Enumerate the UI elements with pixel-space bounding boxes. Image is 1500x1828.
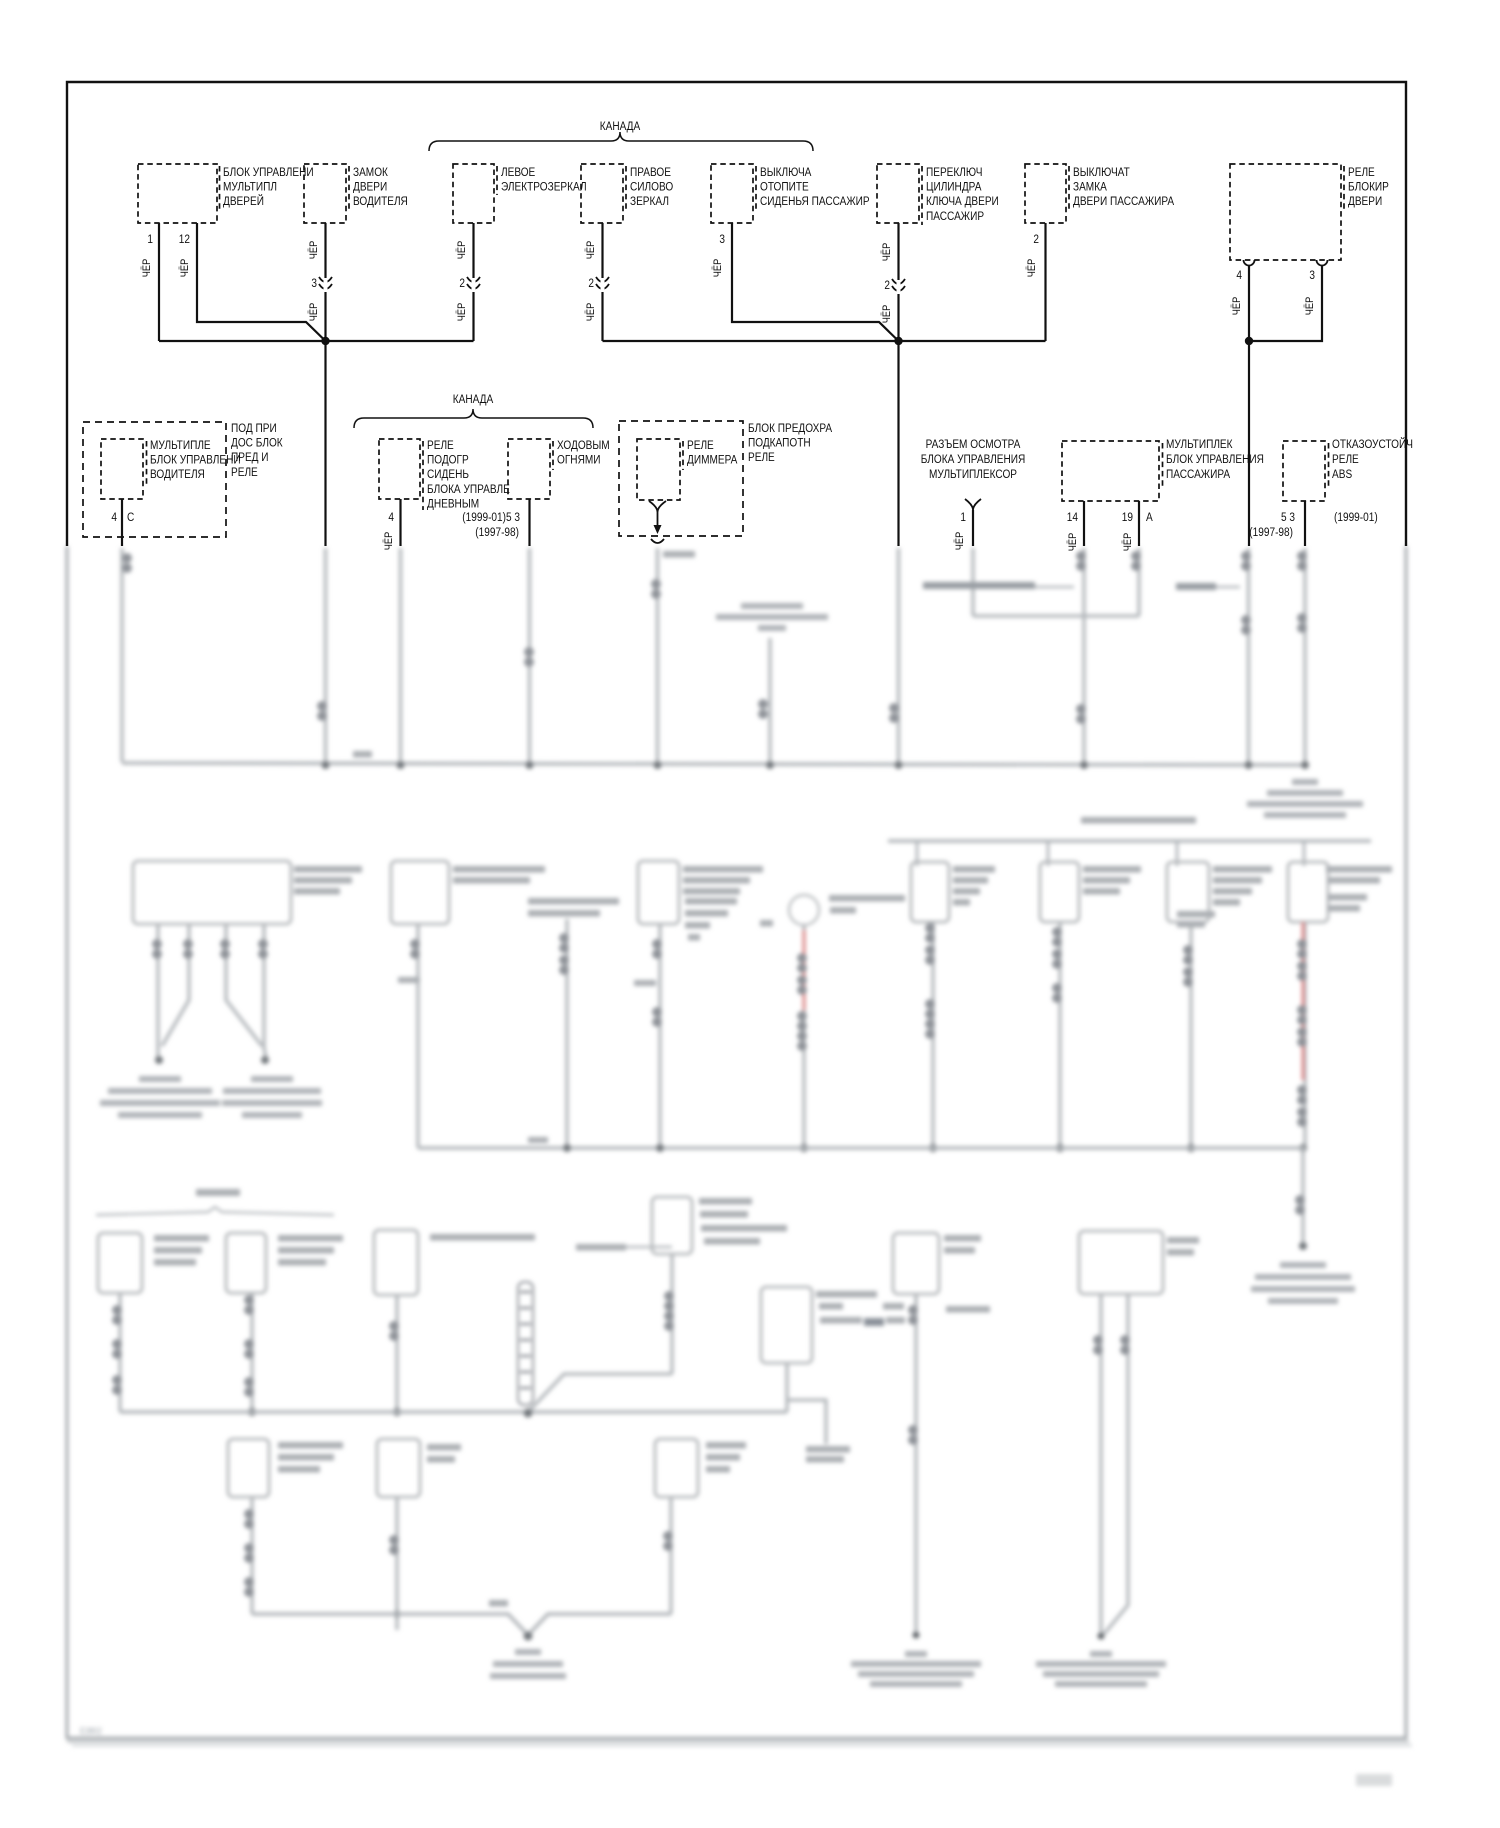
svg-text:A: A [1146,511,1153,524]
svg-text:ЧЁР: ЧЁР [307,303,320,322]
svg-text:ВЫКЛЮЧА: ВЫКЛЮЧА [760,166,812,179]
svg-text:СИДЕНЬ: СИДЕНЬ [427,468,469,481]
svg-text:1: 1 [960,511,966,524]
svg-text:РЕЛЕ: РЕЛЕ [1332,453,1359,466]
svg-text:4: 4 [388,511,394,524]
svg-text:БЛОК ПРЕДОХРА: БЛОК ПРЕДОХРА [748,422,833,435]
svg-text:ЧЁР: ЧЁР [953,532,966,551]
svg-text:2: 2 [884,279,890,292]
svg-text:РЕЛЕ: РЕЛЕ [748,451,775,464]
svg-text:РАЗЪЕМ ОСМОТРА: РАЗЪЕМ ОСМОТРА [926,438,1021,451]
svg-text:ПОДКАПОТН: ПОДКАПОТН [748,437,811,450]
svg-text:ЧЁР: ЧЁР [880,305,893,324]
svg-text:РЕЛЕ: РЕЛЕ [427,439,454,452]
svg-text:ЗАМОК: ЗАМОК [353,166,388,179]
svg-text:C: C [127,511,134,524]
svg-text:2: 2 [459,277,465,290]
svg-text:ДВЕРИ: ДВЕРИ [1348,195,1382,208]
svg-text:5 3: 5 3 [1281,511,1295,524]
svg-text:БЛОК УПРАВЛЕНИ: БЛОК УПРАВЛЕНИ [223,166,314,179]
svg-text:БЛОКА УПРАВЛЕ: БЛОКА УПРАВЛЕ [427,483,510,496]
svg-text:РЕЛЕ: РЕЛЕ [231,466,258,479]
svg-text:3: 3 [1309,269,1315,282]
svg-text:БЛОКА УПРАВЛЕНИЯ: БЛОКА УПРАВЛЕНИЯ [921,453,1026,466]
svg-text:ЧЁР: ЧЁР [1121,533,1134,552]
svg-text:2: 2 [1033,233,1039,246]
svg-text:ОГНЯМИ: ОГНЯМИ [557,454,601,467]
svg-text:ВОДИТЕЛЯ: ВОДИТЕЛЯ [353,195,408,208]
svg-text:ЧЁР: ЧЁР [382,532,395,551]
svg-text:СИДЕНЬЯ ПАССАЖИР: СИДЕНЬЯ ПАССАЖИР [760,195,870,208]
svg-text:ОТКАЗОУСТОЙЧ: ОТКАЗОУСТОЙЧ [1332,437,1413,451]
svg-text:ЧЁР: ЧЁР [140,259,153,278]
svg-text:КАНАДА: КАНАДА [453,393,494,406]
svg-text:РЕЛЕ: РЕЛЕ [1348,166,1375,179]
svg-text:ДВЕРЕЙ: ДВЕРЕЙ [223,194,264,208]
svg-text:РЕЛЕ: РЕЛЕ [687,439,714,452]
svg-text:ЧЁР: ЧЁР [307,241,320,260]
svg-text:БЛОКИР: БЛОКИР [1348,181,1389,194]
svg-text:ЗАМКА: ЗАМКА [1073,181,1107,194]
svg-text:ДВЕРИ ПАССАЖИРА: ДВЕРИ ПАССАЖИРА [1073,195,1175,208]
svg-text:4: 4 [111,511,117,524]
svg-text:1: 1 [147,233,153,246]
svg-text:(1997-98): (1997-98) [475,526,519,539]
svg-text:ВЫКЛЮЧАТ: ВЫКЛЮЧАТ [1073,166,1130,179]
svg-text:МУЛЬТИПЛЕК: МУЛЬТИПЛЕК [1166,438,1233,451]
svg-text:ДИММЕРА: ДИММЕРА [687,454,738,467]
svg-text:ЧЁР: ЧЁР [1025,259,1038,278]
svg-text:14: 14 [1067,511,1078,524]
svg-text:ВОДИТЕЛЯ: ВОДИТЕЛЯ [150,468,205,481]
svg-text:ЧЁР: ЧЁР [1303,297,1316,316]
svg-text:ЧЁР: ЧЁР [455,241,468,260]
svg-text:БЛОК УПРАВЛЕНИ: БЛОК УПРАВЛЕНИ [150,454,241,467]
svg-text:ПАССАЖИР: ПАССАЖИР [926,210,984,223]
svg-text:19: 19 [1122,511,1133,524]
svg-text:ДОС БЛОК: ДОС БЛОК [231,437,283,450]
svg-text:ЭЛЕКТРОЗЕРКАЛ: ЭЛЕКТРОЗЕРКАЛ [501,181,587,194]
svg-text:ПРАВОЕ: ПРАВОЕ [630,166,671,179]
svg-text:КАНАДА: КАНАДА [600,120,641,133]
svg-text:ЧЁР: ЧЁР [1066,533,1079,552]
svg-text:4: 4 [1236,269,1242,282]
svg-text:МУЛЬТИПЛ: МУЛЬТИПЛ [223,181,277,194]
svg-text:ЧЁР: ЧЁР [178,259,191,278]
svg-text:ЧЁР: ЧЁР [711,259,724,278]
svg-text:12: 12 [179,233,190,246]
svg-text:3: 3 [719,233,725,246]
svg-text:КЛЮЧА ДВЕРИ: КЛЮЧА ДВЕРИ [926,195,999,208]
svg-text:ЧЁР: ЧЁР [584,241,597,260]
svg-text:СИЛОВО: СИЛОВО [630,181,674,194]
svg-text:ДНЕВНЫМ: ДНЕВНЫМ [427,498,479,511]
svg-text:МУЛЬТИПЛЕКСОР: МУЛЬТИПЛЕКСОР [929,468,1017,481]
svg-text:3: 3 [311,277,317,290]
svg-text:(1999-01)5 3: (1999-01)5 3 [462,511,520,524]
svg-text:МУЛЬТИПЛЕ: МУЛЬТИПЛЕ [150,439,211,452]
svg-text:ПОД ПРИ: ПОД ПРИ [231,422,277,435]
svg-text:ПЕРЕКЛЮЧ: ПЕРЕКЛЮЧ [926,166,982,179]
svg-text:(1997-98): (1997-98) [1249,526,1293,539]
svg-text:ЧЁР: ЧЁР [880,243,893,262]
svg-text:ЦИЛИНДРА: ЦИЛИНДРА [926,181,982,194]
svg-text:ЧЁР: ЧЁР [1230,297,1243,316]
svg-text:ПАССАЖИРА: ПАССАЖИРА [1166,468,1231,481]
svg-text:ОТОПИТЕ: ОТОПИТЕ [760,181,809,194]
svg-text:ЛЕВОЕ: ЛЕВОЕ [501,166,535,179]
svg-text:ПОДОГР: ПОДОГР [427,454,469,467]
svg-text:ХОДОВЫМ: ХОДОВЫМ [557,439,610,452]
svg-text:2: 2 [588,277,594,290]
svg-text:ЗЕРКАЛ: ЗЕРКАЛ [630,195,669,208]
svg-text:ДВЕРИ: ДВЕРИ [353,181,387,194]
svg-text:БЛОК УПРАВЛЕНИЯ: БЛОК УПРАВЛЕНИЯ [1166,453,1264,466]
svg-text:ЧЁР: ЧЁР [455,303,468,322]
svg-text:ЧЁР: ЧЁР [584,303,597,322]
svg-text:(1999-01): (1999-01) [1334,511,1378,524]
svg-text:ABS: ABS [1332,468,1352,481]
